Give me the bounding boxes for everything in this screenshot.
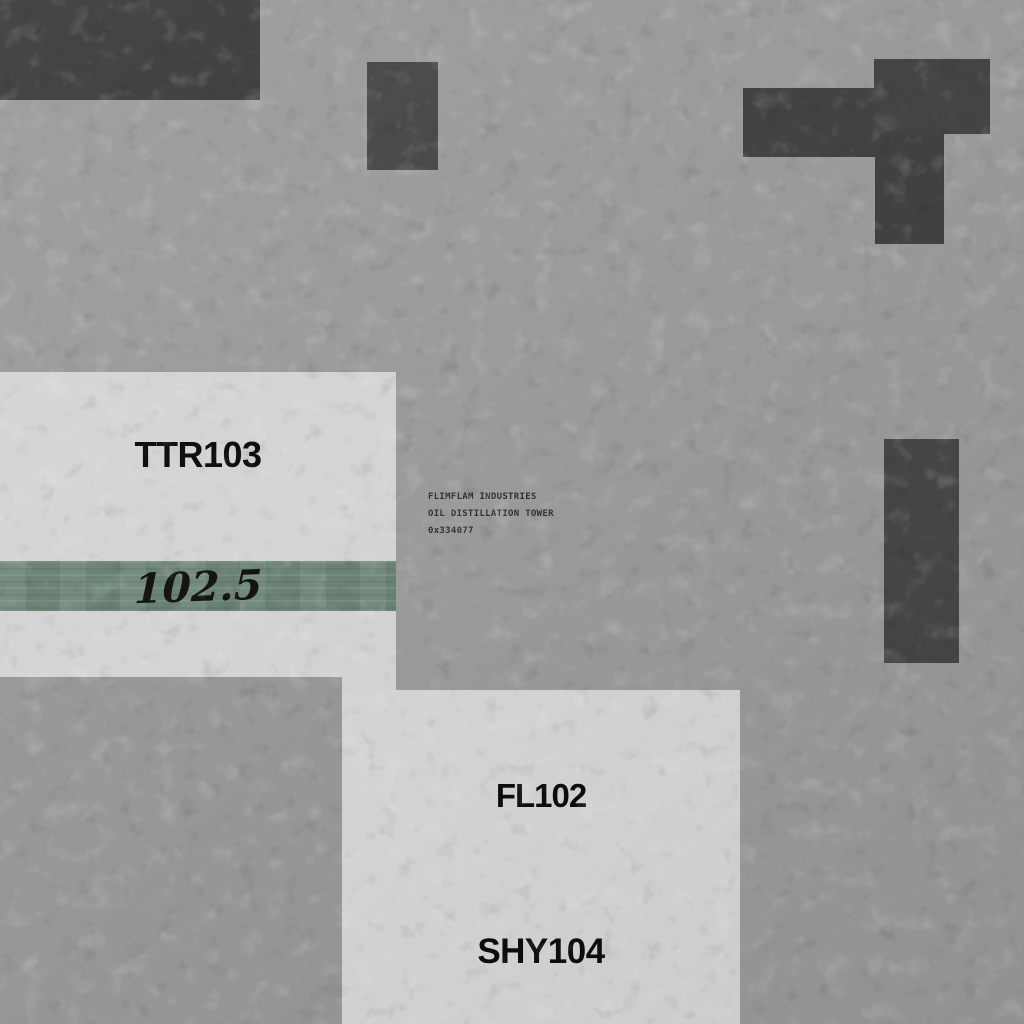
entity-tooltip: FLIMFLAM INDUSTRIES OIL DISTILLATION TOW… — [428, 491, 648, 542]
structure-t-shape-stem[interactable] — [875, 134, 944, 244]
structure-right-pillar[interactable] — [884, 439, 959, 663]
level-band-value: 102.5 — [133, 560, 262, 615]
floor-zone-ttr103[interactable] — [0, 372, 396, 690]
structure-small-block[interactable] — [367, 62, 438, 170]
floor-zone-fl102-shy104[interactable] — [342, 690, 740, 1024]
structure-t-shape-arm[interactable] — [743, 88, 875, 157]
zone-label-fl102: FL102 — [342, 779, 740, 812]
level-band[interactable]: 102.5 — [0, 561, 396, 611]
zone-label-ttr103: TTR103 — [0, 437, 396, 473]
floor-region-lower-left — [0, 677, 342, 1024]
tooltip-company: FLIMFLAM INDUSTRIES — [428, 491, 648, 508]
tooltip-entity-name: OIL DISTILLATION TOWER — [428, 508, 648, 525]
structure-t-shape-head[interactable] — [874, 59, 990, 134]
tooltip-entity-id: 0x334077 — [428, 525, 648, 542]
zone-label-shy104: SHY104 — [342, 934, 740, 969]
structure-top-left-block[interactable] — [0, 0, 260, 100]
factory-floor-scene: 102.5 TTR103 FL102 SHY104 FLIMFLAM INDUS… — [0, 0, 1024, 1024]
